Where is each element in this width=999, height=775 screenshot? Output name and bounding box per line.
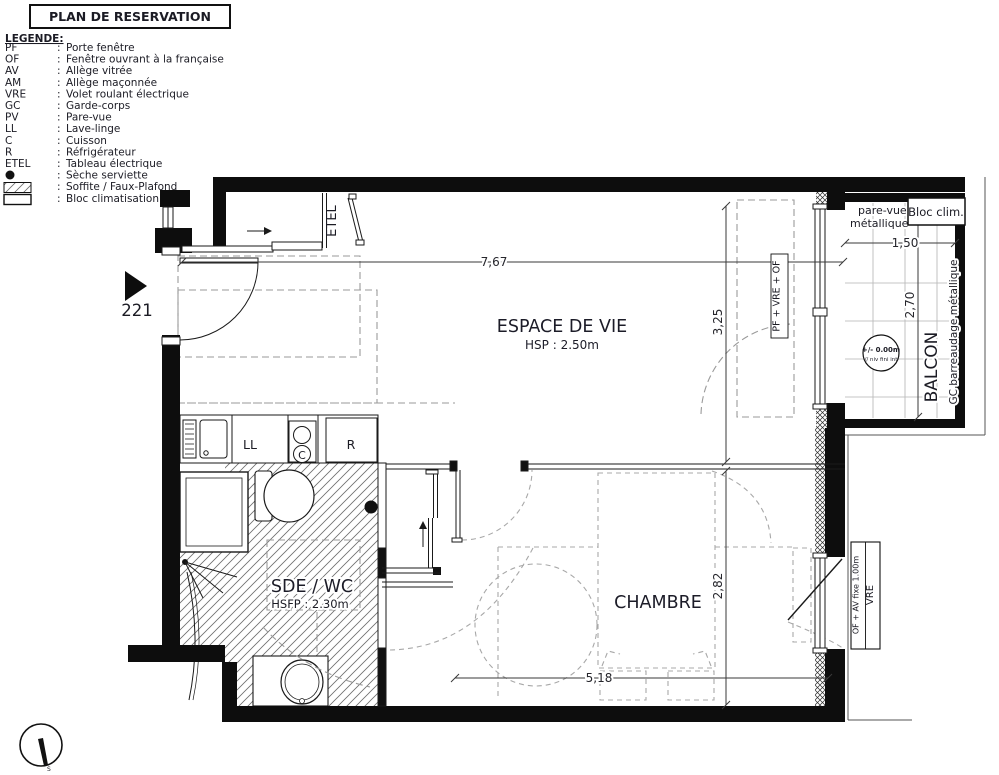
washer-label: LL	[243, 437, 257, 452]
electrical-panel-label: ETEL	[325, 204, 340, 236]
legend-abbr: C	[5, 135, 12, 147]
living-room-label: ESPACE DE VIE	[497, 317, 627, 337]
bedroom-window-tag: OF + AV fixe 1.00m VRE	[851, 542, 880, 649]
seche-serviette-dot-icon	[6, 171, 15, 180]
compass: S	[20, 724, 62, 773]
legend-label: Sèche serviette	[66, 170, 148, 182]
legend-item: C : Cuisson	[5, 135, 107, 147]
basin-faucet-icon	[300, 699, 305, 704]
legend-item: OF : Fenêtre ouvrant à la française	[5, 54, 224, 66]
legend-colon: :	[57, 135, 61, 147]
bloc-clim-label: Bloc clim.	[908, 205, 964, 219]
legend-label: Allège vitrée	[66, 65, 132, 77]
living-room-ceiling: HSP : 2.50m	[525, 338, 599, 352]
legend-abbr: AM	[5, 77, 21, 89]
soffite-kitchen	[178, 290, 377, 403]
legend-colon: :	[57, 65, 61, 77]
entry-triangle-icon	[125, 271, 147, 301]
living-balcony-window	[813, 204, 827, 409]
balcony-label: BALCON	[922, 332, 942, 403]
bathroom-ceiling: HSFP : 2.30m	[271, 597, 349, 611]
legend-label: Bloc climatisation	[66, 193, 159, 205]
compass-label: S	[47, 766, 51, 773]
legend-label: Réfrigérateur	[66, 146, 136, 158]
table-dashed	[475, 564, 597, 686]
toilet-bowl	[264, 470, 314, 522]
legend-abbr: PF	[5, 42, 17, 54]
sliding-door-arrow-icon	[419, 521, 427, 547]
title-block: PLAN DE RESERVATION	[30, 5, 230, 28]
entry-threshold2	[272, 242, 322, 250]
dim-bedroom-width: 5,18	[586, 671, 613, 685]
legend-item: : Sèche serviette	[6, 170, 148, 182]
legend-abbr: ETEL	[5, 158, 31, 170]
partition-living-bedroom	[378, 461, 845, 471]
bedroom-zone-boundary	[498, 547, 793, 700]
dish-rack	[183, 420, 196, 458]
legend-colon: :	[57, 88, 61, 100]
level-note: // niv fini int	[865, 357, 899, 363]
fridge-label: R	[347, 437, 356, 452]
legend-item: AV : Allège vitrée	[5, 65, 132, 77]
closet-box-inner	[186, 478, 242, 546]
bedroom-label: CHAMBRE	[614, 593, 702, 613]
living-window-tag: PF + VRE + OF	[771, 254, 788, 338]
legend-label: Allège maçonnée	[66, 77, 157, 89]
bed-dashed	[598, 473, 715, 668]
bed-pillows	[602, 651, 711, 666]
compass-needle-icon	[38, 738, 48, 766]
dim-balcony-width: 1,50	[892, 236, 919, 250]
legend-item: PV : Pare-vue	[5, 112, 112, 124]
wall-step	[128, 645, 225, 662]
bedroom-window-label-line2: VRE	[865, 585, 876, 605]
legend-label: Tableau électrique	[65, 158, 162, 170]
wall-top	[213, 177, 965, 192]
legend-label: Porte fenêtre	[66, 42, 135, 54]
entry-door-jamb-bottom	[162, 337, 180, 345]
legend-abbr: VRE	[5, 88, 26, 100]
pare-vue-label-line2: métallique	[850, 217, 909, 230]
bedroom-window	[788, 553, 842, 653]
legend-label: Cuisson	[66, 135, 107, 147]
bedroom-door-swing-right	[712, 471, 771, 543]
legend-abbr: R	[5, 146, 12, 158]
soffite-entry	[178, 256, 360, 357]
bedroom-window-label-line1: OF + AV fixe 1.00m	[852, 556, 861, 634]
legend-item: AM : Allège maçonnée	[5, 77, 157, 89]
pare-vue-label-line1: pare-vue	[858, 204, 907, 217]
wall-left-upper-block	[160, 190, 190, 207]
legend-item: R : Réfrigérateur	[5, 146, 136, 158]
entry-threshold	[182, 246, 273, 252]
legend-abbr: AV	[5, 65, 20, 77]
wall-bottom	[222, 706, 845, 722]
wall-step-column	[222, 662, 237, 708]
legend-colon: :	[57, 112, 61, 124]
legend-colon: :	[57, 123, 61, 135]
legend-label: Lave-linge	[66, 123, 120, 135]
living-window-label: PF + VRE + OF	[772, 260, 783, 331]
level-value: +/- 0.00m	[862, 346, 900, 354]
legend-abbr: OF	[5, 54, 19, 66]
legend-colon: :	[57, 193, 61, 205]
washbasin-inner	[285, 664, 319, 700]
floor-plan-page: PLAN DE RESERVATION LEGENDE: PF : Porte …	[0, 0, 999, 775]
entry-door-swing	[180, 262, 258, 340]
legend-colon: :	[57, 54, 61, 66]
legend-colon: :	[57, 170, 61, 182]
dim-balcony-depth: 2,70	[903, 292, 917, 319]
legend-item: GC : Garde-corps	[5, 100, 130, 112]
legend-abbr: LL	[5, 123, 17, 135]
page-title: PLAN DE RESERVATION	[49, 9, 211, 24]
wall-bedroom-right-upper	[825, 428, 845, 557]
dim-living-depth: 3,25	[711, 309, 725, 336]
unit-number: 221	[121, 301, 153, 320]
left-wall-window	[163, 207, 173, 228]
legend-colon: :	[57, 42, 61, 54]
legend-colon: :	[57, 158, 61, 170]
legend-colon: :	[57, 100, 61, 112]
vestibule	[382, 470, 462, 587]
cooktop-label: C	[298, 449, 306, 462]
legend-abbr: GC	[5, 100, 20, 112]
dim-bedroom-depth: 2,82	[711, 573, 725, 600]
legend-label: Pare-vue	[66, 112, 112, 124]
vestibule-door-swing	[390, 548, 533, 650]
legend-item: : Bloc climatisation	[4, 193, 159, 205]
bloc-clim-box: Bloc clim.	[908, 198, 965, 225]
level-marker: +/- 0.00m // niv fini int	[862, 335, 900, 371]
wall-bathroom-right	[378, 463, 386, 706]
legend-colon: :	[57, 181, 61, 193]
wardrobe-dashed	[793, 548, 811, 642]
legend-item: ETEL : Tableau électrique	[5, 158, 162, 170]
legend-colon: :	[57, 77, 61, 89]
legend-abbr: PV	[5, 112, 19, 124]
wall-balcony-bottom	[845, 419, 965, 428]
legend-item: : Soffite / Faux-Plafond	[4, 181, 177, 193]
legend: LEGENDE: PF : Porte fenêtre OF : Fenêtre…	[4, 33, 224, 205]
dim-living-width: 7,67	[481, 255, 508, 269]
entry-arrow-icon	[247, 227, 272, 235]
wall-left	[162, 335, 180, 652]
bedroom-furniture	[390, 470, 844, 700]
seche-serviette-icon	[365, 501, 378, 514]
floor-plan-drawing: PLAN DE RESERVATION LEGENDE: PF : Porte …	[0, 0, 999, 775]
legend-label: Volet roulant électrique	[66, 88, 189, 100]
soffite-hatch-swatch-icon	[4, 183, 31, 193]
nightstand-right	[668, 671, 714, 700]
bloc-clim-swatch-icon	[4, 195, 31, 205]
bedroom-door-swing-left	[462, 470, 532, 540]
entry-door-jamb-top	[162, 247, 180, 255]
legend-item: LL : Lave-linge	[5, 123, 120, 135]
legend-colon: :	[57, 146, 61, 158]
sink-faucet-icon	[204, 451, 208, 455]
legend-label: Fenêtre ouvrant à la française	[66, 54, 224, 66]
legend-item: VRE : Volet roulant électrique	[5, 88, 189, 100]
unit-marker: 221	[121, 271, 153, 320]
legend-label: Garde-corps	[66, 100, 130, 112]
bathroom-label: SDE / WC	[271, 577, 353, 597]
wall-entry-column	[213, 177, 226, 247]
balcony-railing-label: GC barreaudage métallique	[948, 259, 960, 404]
